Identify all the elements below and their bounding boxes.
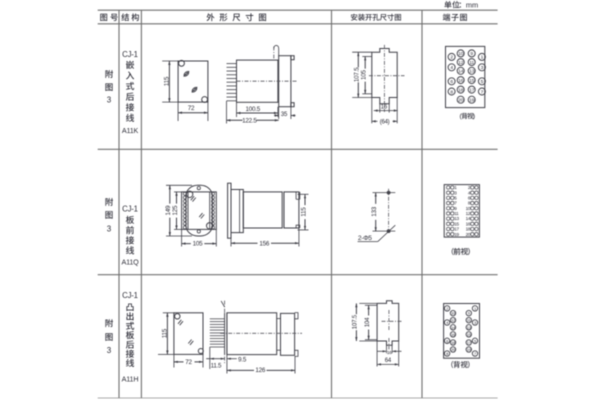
svg-text:105: 105 xyxy=(361,70,368,81)
svg-text:10: 10 xyxy=(458,51,464,57)
svg-text:133: 133 xyxy=(371,206,378,217)
svg-text:3: 3 xyxy=(107,346,112,355)
svg-text:20: 20 xyxy=(458,97,464,103)
svg-text:CJ-1: CJ-1 xyxy=(122,291,138,300)
svg-text:64: 64 xyxy=(385,358,392,364)
svg-text:3: 3 xyxy=(107,95,112,104)
svg-text:156: 156 xyxy=(259,240,270,247)
svg-text:2-Φ5: 2-Φ5 xyxy=(358,235,372,242)
svg-text:13: 13 xyxy=(469,69,475,75)
svg-text:115: 115 xyxy=(162,328,169,338)
svg-text:122.5: 122.5 xyxy=(242,117,257,124)
svg-text:126: 126 xyxy=(255,367,266,374)
svg-text:(64): (64) xyxy=(380,119,390,125)
svg-text:A11H: A11H xyxy=(122,375,139,384)
svg-text:35: 35 xyxy=(281,112,288,118)
svg-text:16: 16 xyxy=(387,350,392,356)
svg-text:A11Q: A11Q xyxy=(121,257,139,266)
svg-text:104: 104 xyxy=(364,317,371,327)
svg-text:72: 72 xyxy=(188,105,195,112)
svg-text:12: 12 xyxy=(458,60,464,66)
svg-text:11.5: 11.5 xyxy=(211,362,222,369)
svg-text:125: 125 xyxy=(172,205,179,216)
svg-text:mm: mm xyxy=(466,0,478,9)
svg-text:3: 3 xyxy=(107,224,112,233)
svg-text:16: 16 xyxy=(381,103,388,110)
svg-text:A11K: A11K xyxy=(122,126,139,135)
svg-text:19: 19 xyxy=(454,232,459,237)
svg-text:16: 16 xyxy=(458,78,464,84)
svg-text:): ) xyxy=(467,360,469,369)
svg-text:100.5: 100.5 xyxy=(246,106,261,113)
svg-text:20: 20 xyxy=(466,232,471,237)
svg-text:11: 11 xyxy=(469,60,474,66)
svg-text:107.5: 107.5 xyxy=(352,314,359,329)
svg-text:CJ-1: CJ-1 xyxy=(122,50,138,59)
svg-text:17: 17 xyxy=(469,87,475,93)
svg-text:115: 115 xyxy=(300,207,307,217)
svg-text:9.5: 9.5 xyxy=(238,356,247,363)
svg-text:15: 15 xyxy=(469,78,475,84)
svg-text:19: 19 xyxy=(469,97,475,103)
svg-text:): ) xyxy=(473,113,475,120)
svg-text:105: 105 xyxy=(193,241,204,248)
svg-text:CJ-1: CJ-1 xyxy=(122,204,138,213)
svg-text:14: 14 xyxy=(458,69,464,75)
svg-text:72: 72 xyxy=(185,359,192,366)
svg-text:18: 18 xyxy=(458,87,464,93)
svg-text:115: 115 xyxy=(164,76,171,86)
